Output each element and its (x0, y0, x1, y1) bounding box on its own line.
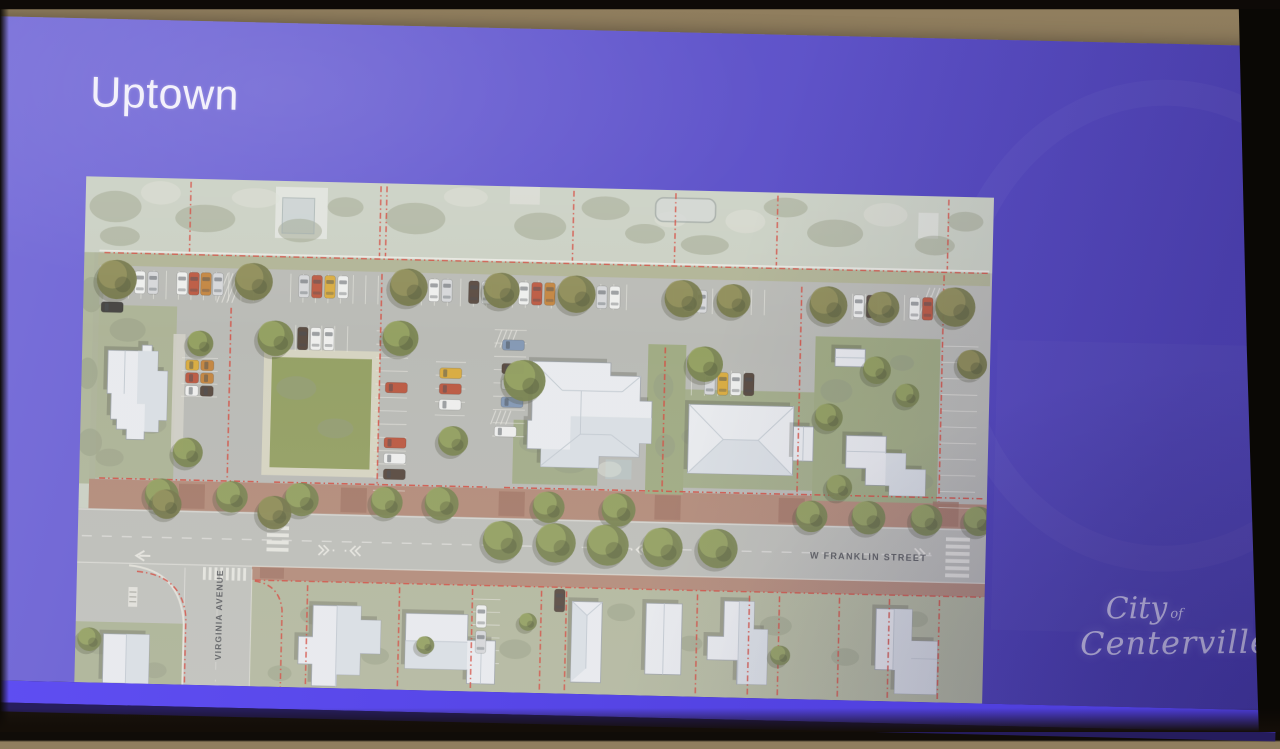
logo-name: Centerville (1080, 627, 1250, 659)
logo-of: of (1170, 607, 1183, 622)
photo-edge-bottom (0, 708, 1280, 732)
site-plan-map: W FRANKLIN STREETVIRGINIA AVENUE (74, 176, 994, 703)
logo-city: City (1106, 591, 1168, 627)
slide-title: Uptown (90, 68, 240, 120)
map-wash-overlay (74, 176, 994, 703)
projector-screen: Uptown W FRANKLIN STREETVIRGINIA AVENUE … (0, 16, 1280, 746)
photo-edge-top (0, 0, 1280, 9)
site-plan-figure: W FRANKLIN STREETVIRGINIA AVENUE (74, 176, 994, 703)
city-of-centerville-logo: Cityof Centerville (1080, 595, 1251, 659)
photo-edge-left (0, 0, 9, 732)
slide: Uptown W FRANKLIN STREETVIRGINIA AVENUE … (0, 16, 1280, 710)
